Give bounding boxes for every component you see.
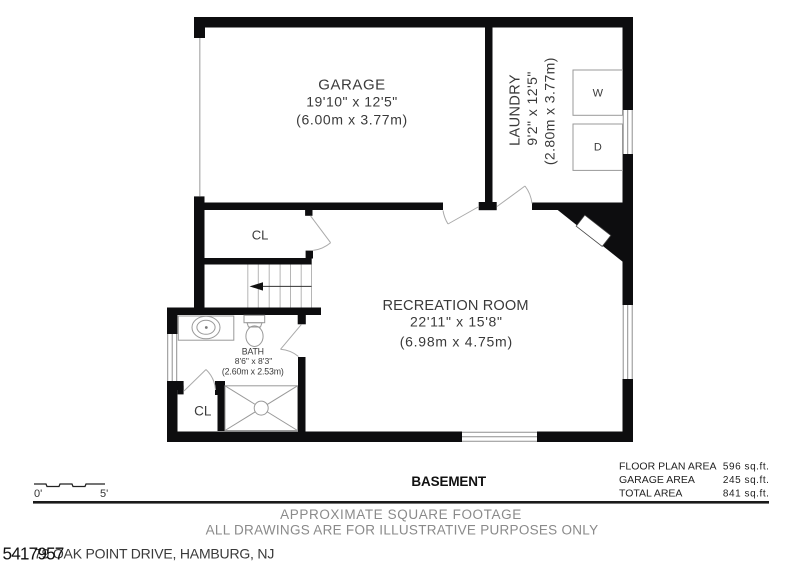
- svg-text:(6.00m x 3.77m): (6.00m x 3.77m): [296, 112, 408, 128]
- svg-text:79 OAK POINT DRIVE, HAMBURG, N: 79 OAK POINT DRIVE, HAMBURG, NJ: [34, 546, 274, 562]
- svg-text:8'6" x 8'3": 8'6" x 8'3": [235, 356, 273, 366]
- svg-text:5417957: 5417957: [3, 544, 64, 564]
- svg-text:5': 5': [100, 488, 108, 500]
- svg-text:9'2" x 12'5": 9'2" x 12'5": [524, 71, 540, 145]
- svg-text:596 sq.ft.: 596 sq.ft.: [723, 462, 770, 473]
- svg-text:GARAGE: GARAGE: [318, 77, 385, 94]
- svg-text:D: D: [594, 142, 602, 154]
- svg-text:GARAGE AREA: GARAGE AREA: [619, 474, 695, 486]
- svg-text:(2.80m x 3.77m): (2.80m x 3.77m): [542, 57, 558, 165]
- svg-text:APPROXIMATE SQUARE FOOTAGE: APPROXIMATE SQUARE FOOTAGE: [280, 507, 522, 522]
- svg-text:(2.60m x 2.53m): (2.60m x 2.53m): [222, 367, 284, 377]
- svg-text:CL: CL: [194, 404, 212, 419]
- svg-text:(6.98m x 4.75m): (6.98m x 4.75m): [400, 334, 513, 350]
- svg-text:RECREATION ROOM: RECREATION ROOM: [382, 298, 528, 314]
- svg-text:BASEMENT: BASEMENT: [411, 474, 486, 489]
- svg-text:ALL DRAWINGS ARE FOR ILLUSTRAT: ALL DRAWINGS ARE FOR ILLUSTRATIVE PURPOS…: [206, 523, 599, 538]
- svg-text:841 sq.ft.: 841 sq.ft.: [723, 489, 770, 500]
- svg-text:0': 0': [34, 488, 42, 500]
- svg-text:LAUNDRY: LAUNDRY: [508, 74, 524, 146]
- svg-text:W: W: [593, 88, 604, 100]
- svg-text:CL: CL: [252, 228, 269, 243]
- svg-text:19'10" x 12'5": 19'10" x 12'5": [306, 94, 398, 110]
- svg-text:FLOOR PLAN AREA: FLOOR PLAN AREA: [619, 461, 716, 473]
- svg-text:TOTAL AREA: TOTAL AREA: [619, 488, 682, 500]
- svg-text:22'11" x 15'8": 22'11" x 15'8": [410, 314, 503, 330]
- svg-text:245 sq.ft.: 245 sq.ft.: [723, 475, 770, 486]
